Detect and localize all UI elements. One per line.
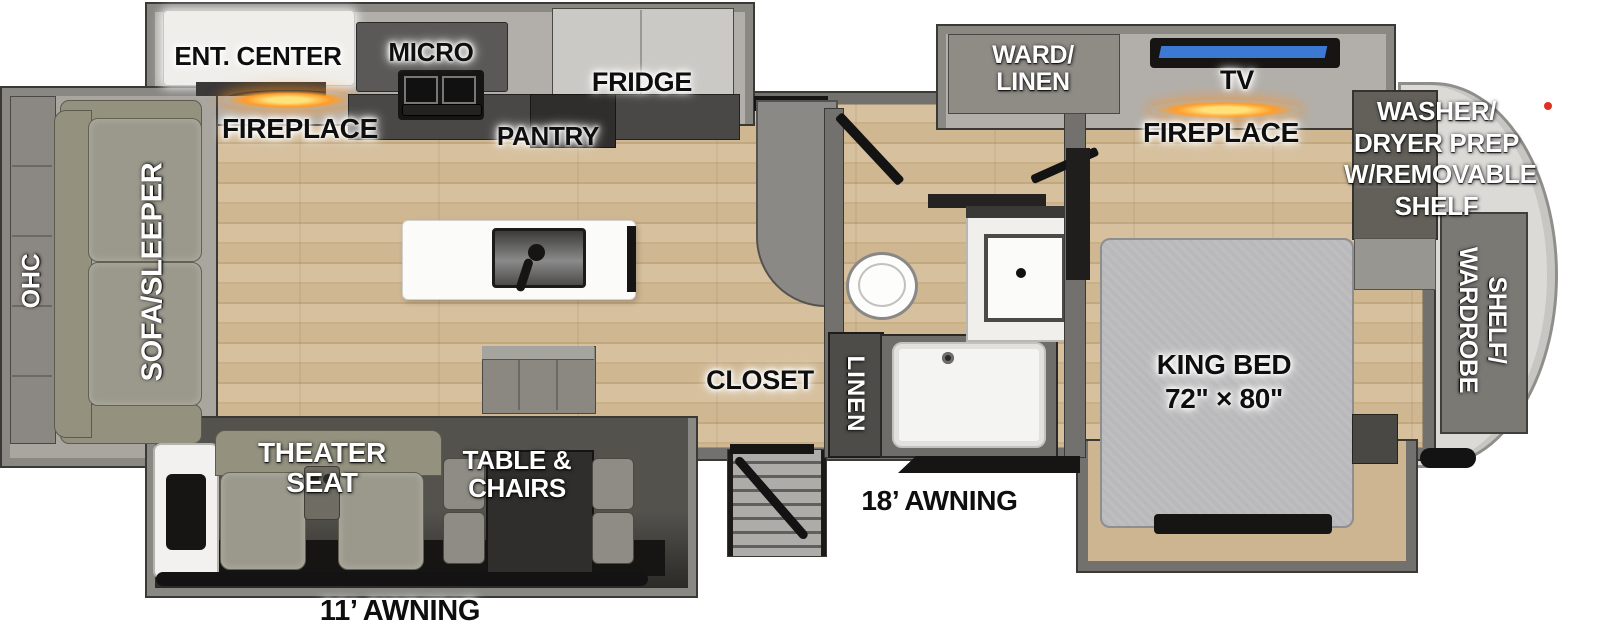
entry-threshold xyxy=(730,444,814,454)
island-edge-trim xyxy=(627,226,636,292)
label-awning-11: 11’ AWNING xyxy=(290,596,510,627)
sofa-backrest xyxy=(54,110,92,438)
tv-screen xyxy=(1159,46,1328,58)
label-ward-linen: WARD/ LINEN xyxy=(948,42,1118,96)
label-sofa-sleeper: SOFA/SLEEPER xyxy=(137,163,168,382)
ohc-line xyxy=(12,165,52,167)
hutch-line xyxy=(518,360,520,410)
hutch-line xyxy=(556,360,558,410)
label-fireplace-right: FIREPLACE xyxy=(1121,118,1321,148)
ohc-line xyxy=(12,235,52,237)
bedroom-nightstand xyxy=(1352,414,1398,464)
front-dresser xyxy=(1354,238,1436,290)
vanity-counter-edge xyxy=(966,206,1074,218)
fireplace-glow-left xyxy=(222,90,354,110)
label-washer-line2: DRYER PREP xyxy=(1344,128,1529,160)
dinette-chair xyxy=(592,512,634,564)
marker-light xyxy=(1544,102,1552,110)
label-king-bed: KING BED 72" × 80" xyxy=(1114,348,1334,415)
label-fireplace-left: FIREPLACE xyxy=(200,114,400,144)
dinette-chair xyxy=(443,512,485,564)
burner-grate-left xyxy=(404,76,438,104)
label-awning-18: 18’ AWNING xyxy=(852,486,1027,516)
label-shelf-line2: WARDROBE xyxy=(1453,247,1482,393)
bedroom-media-cabinet xyxy=(1066,148,1090,280)
dinette-chair xyxy=(592,458,634,510)
label-tv: TV xyxy=(1192,66,1282,95)
label-ohc: OHC xyxy=(19,254,46,309)
label-shelf-line1: SHELF/ xyxy=(1482,247,1511,393)
label-washer-line1: WASHER/ xyxy=(1344,96,1529,128)
label-fridge: FRIDGE xyxy=(562,68,722,97)
shower-pan xyxy=(892,342,1046,448)
awning-rail-right xyxy=(898,456,1080,473)
label-micro: MICRO xyxy=(381,38,481,66)
ohc-line xyxy=(12,375,52,377)
label-pantry: PANTRY xyxy=(488,122,608,150)
label-shelf-wardrobe: SHELF/ WARDROBE xyxy=(1453,247,1511,393)
label-ward-linen-line2: LINEN xyxy=(948,69,1118,96)
endcap-window xyxy=(166,474,206,550)
label-king-bed-line1: KING BED xyxy=(1114,348,1334,382)
label-table-chairs: TABLE & CHAIRS xyxy=(450,446,584,502)
label-washer-line3: W/REMOVABLE xyxy=(1344,159,1529,191)
vanity-faucet xyxy=(1016,268,1026,278)
awning-rod-left xyxy=(156,572,648,586)
hutch-top xyxy=(482,346,594,360)
label-closet: CLOSET xyxy=(700,366,820,395)
label-linen: LINEN xyxy=(842,356,868,433)
burner-grate-right xyxy=(442,76,476,104)
front-landing-gear xyxy=(1420,448,1476,468)
label-ward-linen-line1: WARD/ xyxy=(948,42,1118,69)
label-ent-center: ENT. CENTER xyxy=(168,42,348,70)
stove-knob-rail xyxy=(402,104,482,116)
label-king-bed-line2: 72" × 80" xyxy=(1114,382,1334,416)
shower-drain xyxy=(942,352,954,364)
label-washer-line4: SHELF xyxy=(1344,191,1529,223)
toilet-seat xyxy=(858,263,906,307)
vanity-sink xyxy=(984,234,1066,322)
bed-base xyxy=(1154,514,1332,534)
label-theater-seat: THEATER SEAT xyxy=(252,438,392,498)
rv-floorplan: ENT. CENTER MICRO FRIDGE FIREPLACE PANTR… xyxy=(0,0,1600,633)
label-washer-dryer: WASHER/ DRYER PREP W/REMOVABLE SHELF xyxy=(1344,96,1529,223)
